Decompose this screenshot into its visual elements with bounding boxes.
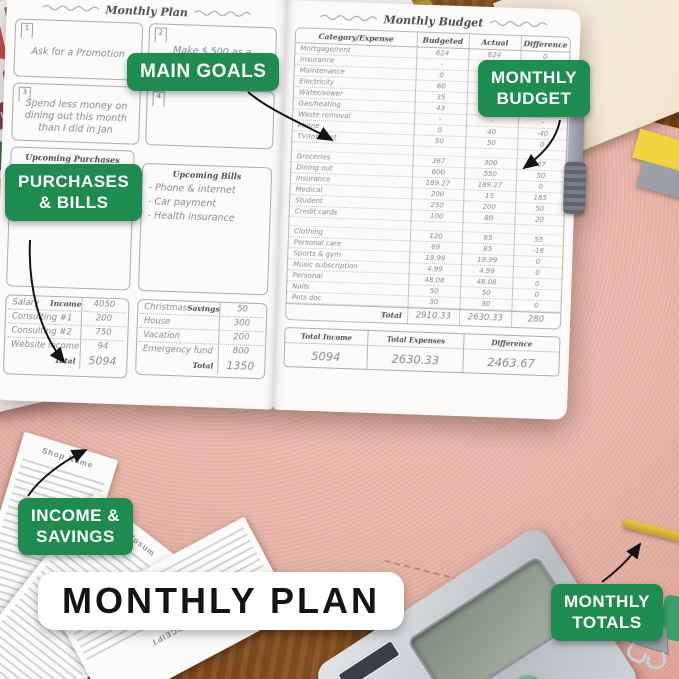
income-total-row: Total 5094 xyxy=(6,350,124,370)
budget-group-personal: Clothing 120 65 55 Personal care 69 85 -… xyxy=(287,226,564,313)
summary-difference: Difference 2463.67 xyxy=(462,334,559,375)
income-first-value: 4050 xyxy=(81,298,126,313)
divide-button: ÷ xyxy=(502,669,552,679)
wave-decoration xyxy=(41,4,99,12)
label-main-goals: MAIN GOALS xyxy=(127,53,279,91)
goal-number-tag: 2 xyxy=(155,27,168,42)
goal-box: 3 Spend less money on dining out this mo… xyxy=(11,82,141,144)
total-budgeted: 2910.33 xyxy=(406,308,459,325)
goal-number-tag: 1 xyxy=(21,23,34,38)
goal-box: 1 Ask for a Promotion xyxy=(13,18,143,80)
income-first-entry: Salary xyxy=(8,297,50,308)
income-total-value: 5094 xyxy=(79,353,125,371)
total-difference: 280 xyxy=(511,312,561,329)
col-difference: Difference xyxy=(520,36,570,52)
page-title: Monthly Budget xyxy=(383,13,483,29)
monthly-totals-summary: Total Income 5094 Total Expenses 2630.33… xyxy=(283,327,560,377)
upcoming-bills-box: Upcoming Bills - Phone & internet- Car p… xyxy=(138,163,272,295)
label-monthly-totals: MONTHLY TOTALS xyxy=(551,584,663,641)
income-rows: Consulting #1 200 Consulting #2 750 Webs… xyxy=(7,309,126,354)
label-monthly-budget: MONTHLY BUDGET xyxy=(478,60,590,117)
label-income-savings: INCOME & SAVINGS xyxy=(18,498,133,555)
label-purchases-bills: PURCHASES & BILLS xyxy=(5,164,142,221)
income-column-header: Income xyxy=(50,299,82,309)
col-budgeted: Budgeted xyxy=(416,32,469,48)
page-title: Monthly Plan xyxy=(105,3,188,19)
right-column: Upcoming Bills - Phone & internet- Car p… xyxy=(135,151,273,383)
bill-item: - Phone & internet xyxy=(148,182,264,197)
savings-first-entry: Christmas xyxy=(140,301,187,313)
budget-group-living: Groceries 367 300 67 Dining out 600 550 … xyxy=(290,151,566,227)
savings-box: Christmas Savings 50 House 300 Vacation … xyxy=(135,299,268,379)
total-actual: 2630.33 xyxy=(459,310,512,327)
bill-item: - Car payment xyxy=(148,196,264,211)
monthly-plan-banner: MONTHLY PLAN xyxy=(38,572,404,630)
wave-decoration xyxy=(320,14,378,22)
savings-total-row: Total 1350 xyxy=(138,355,262,375)
monthly-plan-banner-text: MONTHLY PLAN xyxy=(62,580,380,621)
goal-text: Spend less money on dining out this mont… xyxy=(18,98,133,138)
upcoming-bills-title: Upcoming Bills xyxy=(149,168,265,182)
product-photo-scene: $ ZEROWAGEGOLDTHE MIND SAVEDSTOPEARNEDYO… xyxy=(0,0,679,679)
savings-column-header: Savings xyxy=(187,304,220,314)
goal-box: 4 xyxy=(145,87,275,149)
summary-total-income: Total Income 5094 xyxy=(284,328,367,369)
savings-rows: House 300 Vacation 200 Emergency fund 80… xyxy=(139,314,264,359)
savings-total-value: 1350 xyxy=(217,358,263,376)
pen-loop xyxy=(563,162,587,215)
bill-item: - Health insurance xyxy=(147,210,263,225)
col-actual: Actual xyxy=(468,34,521,50)
wave-decoration xyxy=(489,20,547,28)
solar-panel xyxy=(336,639,402,679)
summary-total-expenses: Total Expenses 2630.33 xyxy=(367,331,464,372)
savings-first-value: 50 xyxy=(219,303,264,318)
bills-list: - Phone & internet- Car payment- Health … xyxy=(147,182,264,225)
income-box: Salary Income 4050 Consulting #1 200 Con… xyxy=(3,294,130,378)
goal-number-tag: 4 xyxy=(152,91,165,106)
goal-text: Ask for a Promotion xyxy=(31,46,125,61)
wave-decoration xyxy=(194,10,252,18)
